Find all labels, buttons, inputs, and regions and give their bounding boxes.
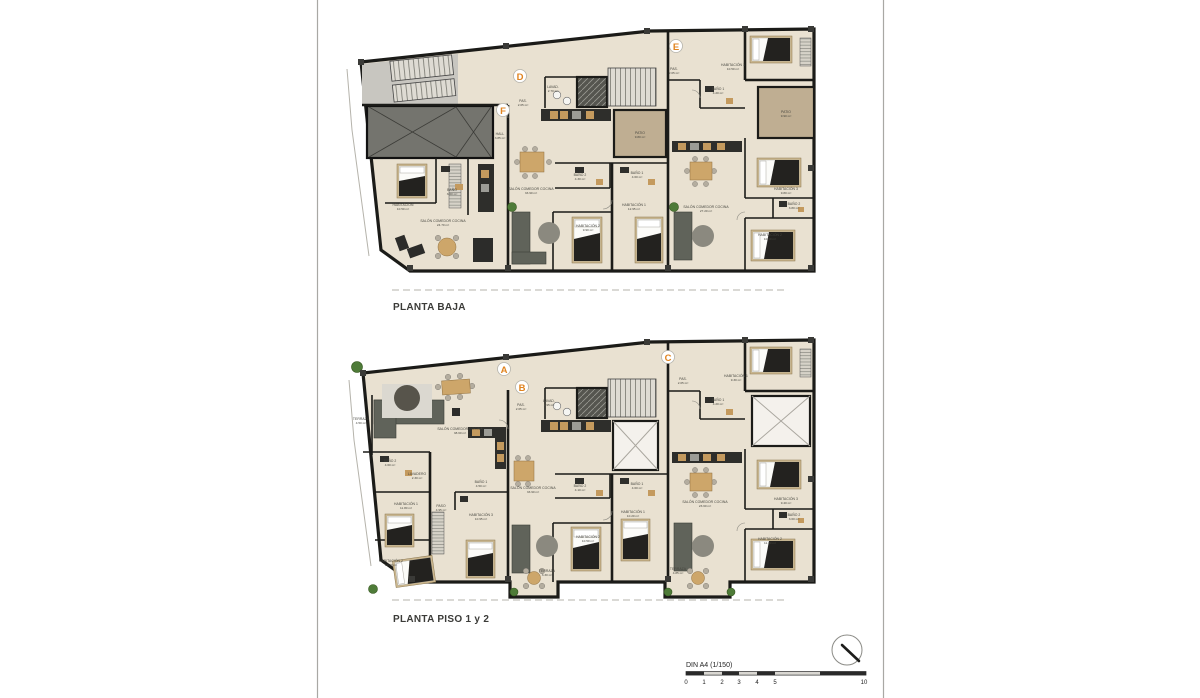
scale-bar: DIN A4 (1/150) 0 1 2 3 4 5 10 bbox=[684, 662, 868, 686]
plant bbox=[664, 588, 672, 596]
room-area: 4.20 m² bbox=[713, 91, 724, 95]
room-area: 4.20 m² bbox=[713, 402, 724, 406]
bed bbox=[757, 460, 801, 489]
scale-label: DIN A4 (1/150) bbox=[686, 662, 732, 669]
dining-table bbox=[435, 235, 459, 259]
room-area: 10.90 m² bbox=[764, 237, 776, 241]
room-area: 2.05 m² bbox=[516, 407, 527, 411]
scale-tick: 10 bbox=[861, 680, 868, 686]
room-area: 2.70 m² bbox=[548, 89, 559, 93]
bed bbox=[750, 36, 792, 63]
washer bbox=[563, 97, 571, 105]
room-area: 10.50 m² bbox=[582, 539, 594, 543]
room-area: 9.80 m² bbox=[635, 135, 646, 139]
room-area: 2.05 m² bbox=[518, 103, 529, 107]
room-area: 2.05 m² bbox=[678, 381, 689, 385]
room-area: 11.80 m² bbox=[400, 506, 412, 510]
sofa bbox=[674, 523, 692, 571]
room-area: 38.60 m² bbox=[454, 431, 466, 435]
rug bbox=[692, 535, 714, 557]
closet bbox=[432, 512, 444, 554]
lightwell-middle bbox=[613, 421, 658, 470]
unit-letter-c: C bbox=[662, 351, 675, 365]
unit-letter-text: D bbox=[517, 72, 524, 83]
plan-sheet: HABITACIÓN10.50 m² BAÑO3.60 m² SALÓN COM… bbox=[0, 0, 1200, 698]
room-area: 33.90 m² bbox=[527, 490, 539, 494]
sofa bbox=[674, 212, 692, 260]
room-area: 9.30 m² bbox=[731, 378, 742, 382]
sofa bbox=[512, 525, 530, 573]
closet bbox=[800, 349, 811, 377]
room-area: 4.95 m² bbox=[436, 508, 447, 512]
plan-title-planta-piso: PLANTA PISO 1 y 2 bbox=[393, 614, 489, 625]
bed bbox=[635, 217, 663, 263]
lightwell-right bbox=[752, 396, 810, 446]
plant bbox=[510, 588, 518, 596]
unit-letter-text: C bbox=[665, 353, 672, 364]
room-area: 4.60 m² bbox=[632, 486, 643, 490]
room-area: 24.70 m² bbox=[437, 223, 449, 227]
bed bbox=[385, 514, 414, 547]
rug bbox=[538, 222, 560, 244]
room-area: 3.85 m² bbox=[495, 136, 506, 140]
washer bbox=[553, 402, 561, 410]
unit-letter-text: F bbox=[500, 106, 506, 117]
scale-tick: 0 bbox=[684, 680, 688, 686]
closet bbox=[800, 38, 811, 66]
room-area: 23.60 m² bbox=[699, 504, 711, 508]
plant bbox=[670, 203, 679, 212]
bed bbox=[621, 519, 650, 561]
unit-letter-a: A bbox=[498, 363, 511, 377]
elevator-shaft bbox=[577, 388, 607, 418]
scale-tick: 3 bbox=[737, 680, 741, 686]
hatched-roof-area bbox=[367, 106, 493, 158]
room-area: 3.60 m² bbox=[447, 192, 458, 196]
floor-plan-drawing: HABITACIÓN10.50 m² BAÑO3.60 m² SALÓN COM… bbox=[0, 0, 1200, 698]
room-area: 9.90 m² bbox=[781, 114, 792, 118]
coffee-table bbox=[452, 408, 460, 416]
room-area: 33.90 m² bbox=[525, 191, 537, 195]
room-area: 2.30 m² bbox=[412, 476, 423, 480]
room-area: 3.30 m² bbox=[542, 573, 553, 577]
sideboard bbox=[473, 238, 493, 262]
room-area: 4.60 m² bbox=[632, 175, 643, 179]
bed bbox=[757, 158, 801, 187]
unit-letter-text: B bbox=[519, 383, 526, 394]
elevator-shaft bbox=[577, 77, 607, 107]
rug bbox=[394, 385, 420, 411]
room-area: 4.50 m² bbox=[476, 484, 487, 488]
unit-letter-f: F bbox=[497, 104, 510, 118]
washer bbox=[563, 408, 571, 416]
room-area: 3.80 m² bbox=[789, 206, 800, 210]
room-area: 10.95 m² bbox=[475, 517, 487, 521]
room-area: 9.80 m² bbox=[781, 191, 792, 195]
room-area: 4.60 m² bbox=[385, 463, 396, 467]
room-area: 27.20 m² bbox=[700, 209, 712, 213]
rug bbox=[692, 225, 714, 247]
room-area: 1.95 m² bbox=[544, 403, 555, 407]
room-area: 4.85 m² bbox=[673, 571, 684, 575]
room-area: 11.20 m² bbox=[764, 541, 776, 545]
staircase-core bbox=[608, 68, 656, 106]
unit-letter-text: A bbox=[501, 365, 508, 376]
bed bbox=[466, 540, 495, 578]
room-area: 12.95 m² bbox=[628, 207, 640, 211]
plant bbox=[369, 585, 378, 594]
room-area: 10.20 m² bbox=[627, 514, 639, 518]
unit-letter-b: B bbox=[516, 381, 529, 395]
room-area: 4.50 m² bbox=[356, 421, 367, 425]
unit-letter-text: E bbox=[673, 42, 679, 53]
staircase-core bbox=[608, 379, 656, 417]
bed bbox=[571, 527, 601, 571]
room-area: 9.90 m² bbox=[583, 228, 594, 232]
bed bbox=[750, 347, 792, 374]
unit-letter-d: D bbox=[514, 70, 527, 84]
unit-letter-e: E bbox=[670, 40, 683, 54]
scale-tick: 1 bbox=[702, 680, 706, 686]
scale-tick: 5 bbox=[773, 680, 777, 686]
room-area: 4.10 m² bbox=[575, 488, 586, 492]
room-area: 10.50 m² bbox=[397, 207, 409, 211]
rug bbox=[536, 535, 558, 557]
plan-planta-baja: HABITACIÓN10.50 m² BAÑO3.60 m² SALÓN COM… bbox=[347, 26, 814, 290]
room-area: 10.50 m² bbox=[727, 67, 739, 71]
plan-planta-piso: TERRAZA4.50 m² SALÓN COMEDOR COCINA38.60… bbox=[349, 337, 814, 600]
north-arrow-icon bbox=[832, 635, 862, 665]
room-area: 2.05 m² bbox=[669, 71, 680, 75]
room-area: 9.40 m² bbox=[781, 501, 792, 505]
bed bbox=[397, 164, 427, 198]
scale-tick: 2 bbox=[720, 680, 724, 686]
room-area: 10.30 m² bbox=[385, 563, 397, 567]
room-area: 3.60 m² bbox=[789, 517, 800, 521]
room-area: 4.30 m² bbox=[575, 177, 586, 181]
plant bbox=[508, 203, 517, 212]
plant bbox=[727, 588, 735, 596]
scale-tick: 4 bbox=[755, 680, 759, 686]
plan-title-planta-baja: PLANTA BAJA bbox=[393, 302, 466, 313]
